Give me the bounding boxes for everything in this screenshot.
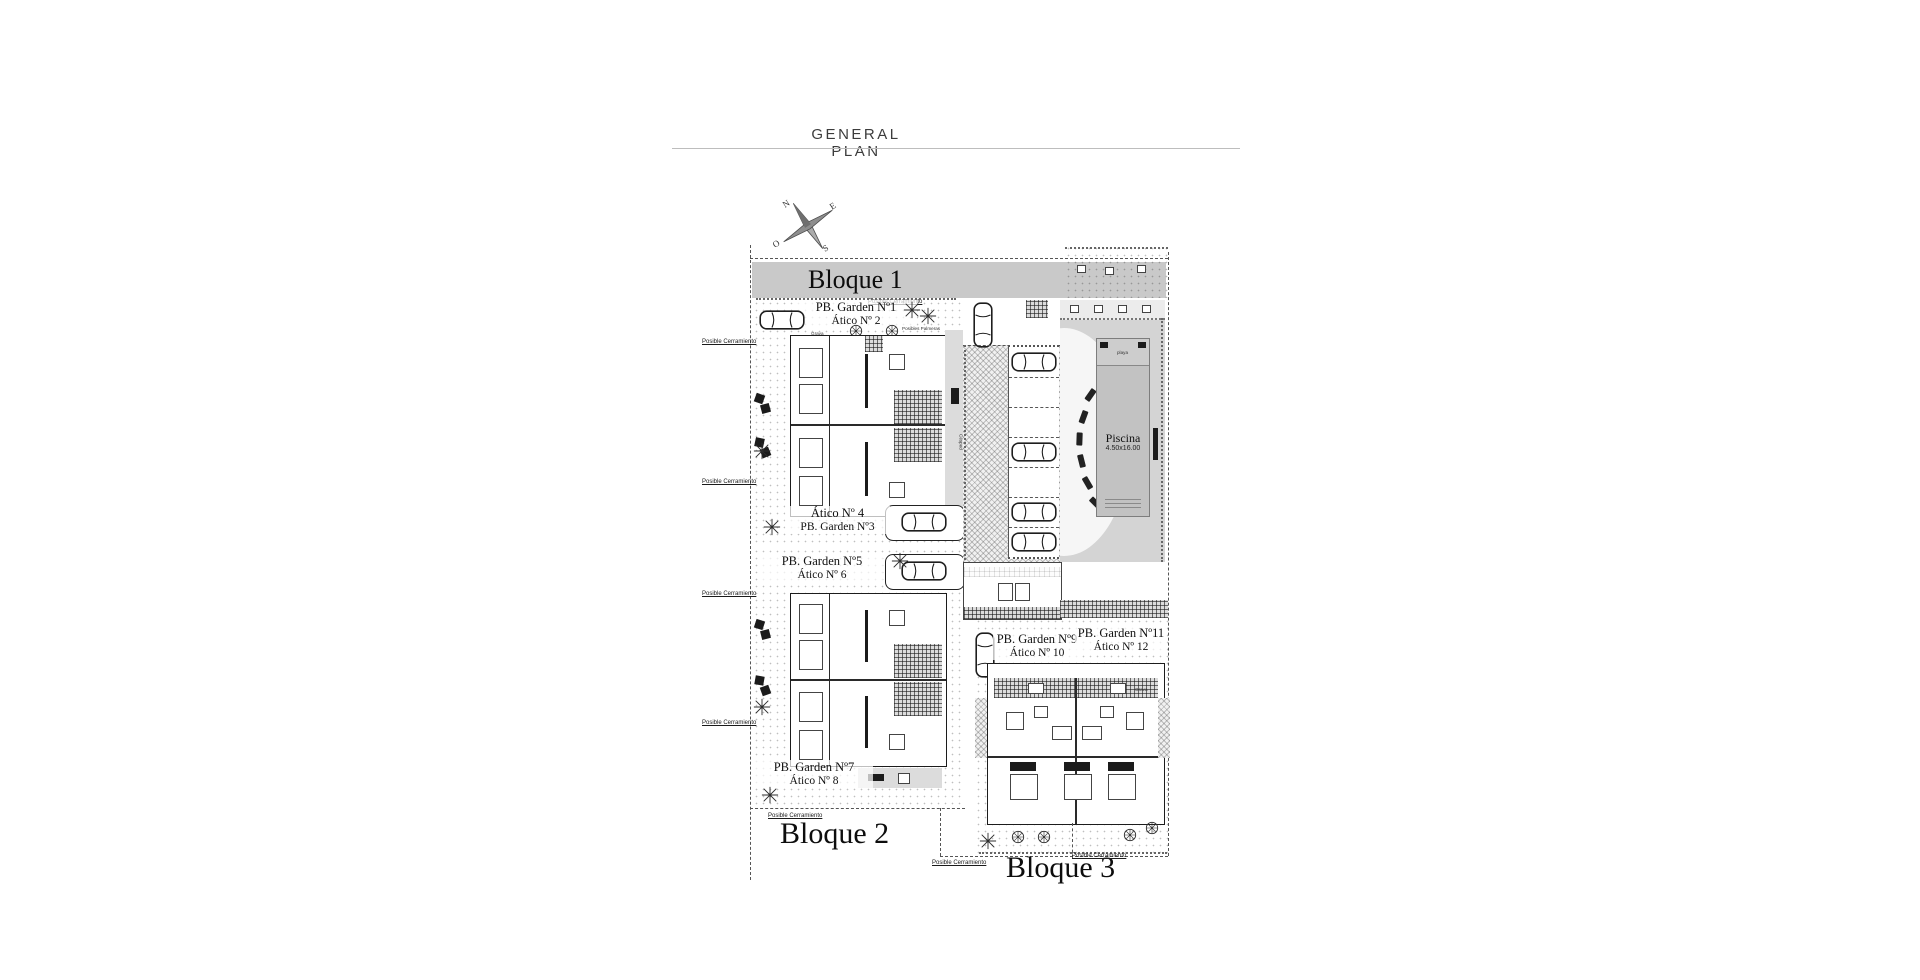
general-plan-page: GENERAL PLAN N E S O Bloque 1 Posible Ce… [0, 0, 1920, 980]
pergola-trellis [894, 390, 942, 424]
building-a [790, 335, 947, 517]
page-title: GENERAL PLAN [786, 126, 926, 160]
lawn-note: Césped [957, 434, 962, 450]
pergola-trellis [894, 682, 942, 716]
palm-icon [919, 307, 937, 325]
pool-dims: 4.50x16.00 [1097, 445, 1149, 452]
unit-label-11-12: PB. Garden Nº11Ático Nº 12 [1075, 626, 1167, 654]
car-icon [1011, 502, 1057, 522]
gravel-note: Grava [1135, 688, 1148, 693]
unit-label-3-4: Ático Nº 4PB. Garden Nº3 [785, 506, 890, 534]
palm-icon [753, 698, 771, 716]
car-icon [1011, 532, 1057, 552]
utility-block [963, 562, 1062, 620]
car-icon [759, 310, 805, 330]
car-icon [973, 302, 993, 348]
compass-n: N [781, 197, 792, 209]
palm-icon [979, 832, 997, 850]
site-plan: N E S O Bloque 1 Posible Cerramiento [700, 195, 1180, 895]
driveway-parking [963, 300, 1060, 562]
palm-icon [891, 552, 909, 570]
deck-terrace-band [1060, 300, 1165, 320]
fence-note-left-4: Posible Cerramiento [702, 720, 756, 727]
parking-column [1008, 345, 1059, 559]
swimming-pool: playa Piscina 4.50x16.00 [1096, 338, 1150, 517]
palm-icon [753, 442, 771, 460]
bloque2-label: Bloque 2 [780, 817, 889, 851]
tree-icon [1145, 821, 1159, 835]
unit-label-9-10: PB. Garden Nº9Ático Nº 10 [993, 632, 1081, 660]
compass-o: O [771, 237, 782, 249]
fence-note-left-1: Posible Cerramiento [702, 339, 756, 346]
tree-icon [1011, 830, 1025, 844]
palms-note: Posibles Palmeras [902, 327, 940, 332]
building-b [790, 593, 947, 767]
lawn-strip: Césped [945, 330, 965, 515]
sun-lounger-icon [1076, 432, 1082, 445]
compass-rose-icon: N E S O [758, 195, 858, 257]
fence-note-left-2: Posible Cerramiento [702, 479, 756, 486]
car-icon [1011, 352, 1057, 372]
unit-label-7-8: PB. Garden Nº7Ático Nº 8 [755, 760, 873, 788]
pergola-trellis [894, 644, 942, 678]
fence-note-left-3: Posible Cerramiento [702, 591, 756, 598]
bloque2-cluster-b: PB. Garden Nº5Ático Nº 6 [753, 548, 965, 808]
northeast-terrace [1065, 245, 1168, 298]
fence-note-bottom-3: Posible Cerramiento [1072, 853, 1126, 860]
pool-beach-label: playa [1117, 351, 1128, 356]
tree-icon [1123, 828, 1137, 842]
bloque1-label: Bloque 1 [808, 265, 903, 295]
compass-s: S [821, 243, 831, 254]
car-icon [901, 512, 947, 532]
palm-icon [761, 786, 779, 804]
car-icon [1011, 442, 1057, 462]
palm-icon [763, 518, 781, 536]
title-rule [672, 148, 1240, 149]
pool-beach-step: playa [1097, 339, 1149, 366]
fence-note-bottom-1: Posible Cerramiento [768, 813, 822, 820]
unit-label-5-6: PB. Garden Nº5Ático Nº 6 [761, 554, 883, 582]
pool-shower [1153, 428, 1158, 460]
pergola-trellis [894, 428, 942, 462]
boundary-bottom-left [750, 808, 965, 809]
tree-icon [1037, 830, 1051, 844]
pool-name: Piscina [1097, 431, 1149, 446]
compass-e: E [828, 200, 838, 212]
fence-note-bottom-2: Posible Cerramiento [932, 860, 986, 867]
bloque2-cluster-a: PB. Garden Nº1Ático Nº 2 Posibles Palmer… [753, 300, 965, 546]
entry-trellis [1026, 300, 1048, 318]
pool-deck: playa Piscina 4.50x16.00 [1060, 300, 1165, 562]
walkway-trellis [1060, 600, 1168, 618]
bloque3-cluster: PB. Garden Nº9Ático Nº 10 PB. Garden Nº1… [975, 618, 1170, 858]
boundary-step [940, 808, 941, 856]
